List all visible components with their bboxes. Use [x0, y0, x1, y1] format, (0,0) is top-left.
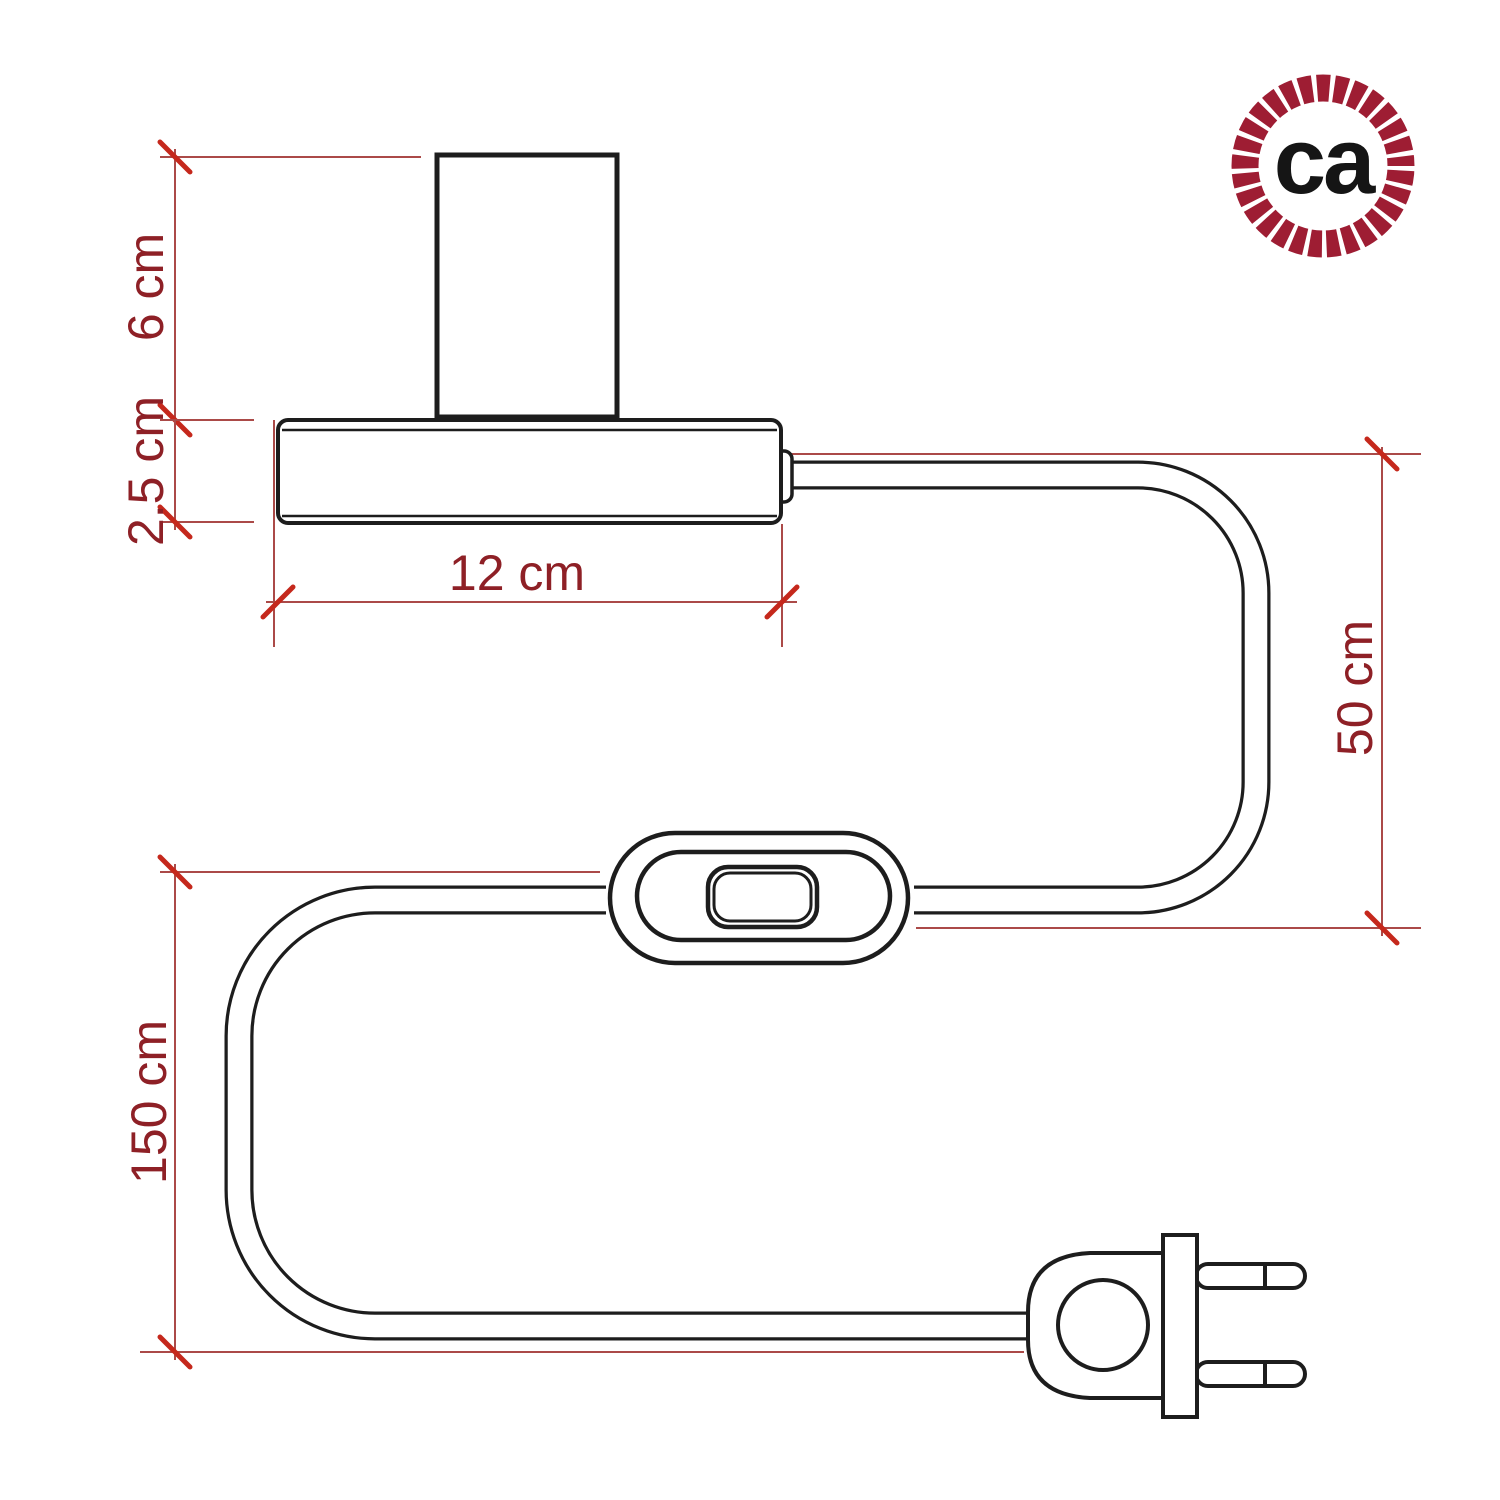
dimension-label-6cm: 6 cm [118, 233, 174, 341]
plug-prong-top [1196, 1264, 1305, 1288]
inline-switch [610, 833, 908, 963]
diagram-canvas: 6 cm 2.5 cm 12 cm 50 cm [0, 0, 1500, 1500]
brand-logo: ca [1245, 88, 1401, 244]
logo-text: ca [1274, 108, 1376, 213]
switch-rocker-button [708, 867, 817, 927]
dimension-label-12cm: 12 cm [449, 545, 585, 601]
lamp-base [278, 420, 781, 523]
plug-face-plate [1163, 1235, 1197, 1417]
plug-prong-bottom [1196, 1362, 1305, 1386]
lamp-holder [437, 155, 617, 417]
plug-screw-cap [1058, 1280, 1148, 1370]
dimension-label-2-5cm: 2.5 cm [118, 396, 174, 546]
lamp-dimension-diagram: 6 cm 2.5 cm 12 cm 50 cm [0, 0, 1500, 1500]
dimension-label-150cm: 150 cm [121, 1020, 177, 1184]
dimension-label-50cm: 50 cm [1327, 620, 1383, 756]
